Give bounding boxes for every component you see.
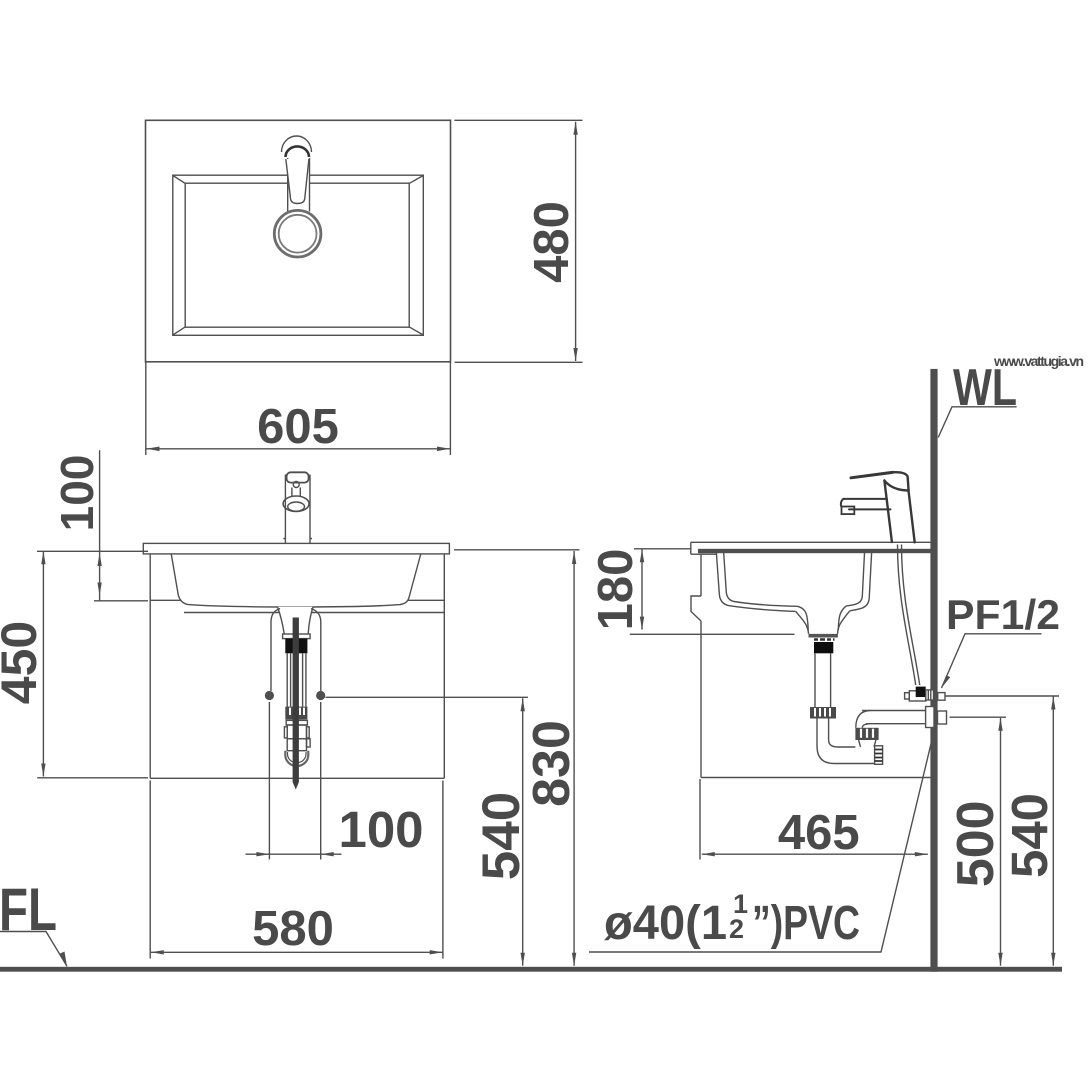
svg-text:100: 100 bbox=[338, 801, 423, 858]
svg-text:605: 605 bbox=[257, 400, 339, 454]
svg-text:WL: WL bbox=[953, 359, 1017, 417]
svg-text:FL: FL bbox=[0, 876, 57, 943]
svg-text:450: 450 bbox=[0, 621, 47, 704]
svg-text:580: 580 bbox=[252, 902, 334, 956]
svg-text:PF1/2: PF1/2 bbox=[946, 591, 1060, 638]
svg-text:540: 540 bbox=[1001, 793, 1058, 878]
svg-text:830: 830 bbox=[523, 720, 581, 807]
svg-text:”)PVC: ”)PVC bbox=[752, 897, 860, 950]
svg-text:ø40(1: ø40(1 bbox=[604, 897, 727, 950]
svg-text:465: 465 bbox=[778, 806, 860, 860]
svg-text:180: 180 bbox=[589, 549, 643, 631]
svg-text:100: 100 bbox=[51, 455, 103, 532]
svg-text:480: 480 bbox=[525, 201, 579, 283]
svg-text:500: 500 bbox=[947, 800, 1005, 887]
svg-text:2: 2 bbox=[729, 914, 744, 944]
